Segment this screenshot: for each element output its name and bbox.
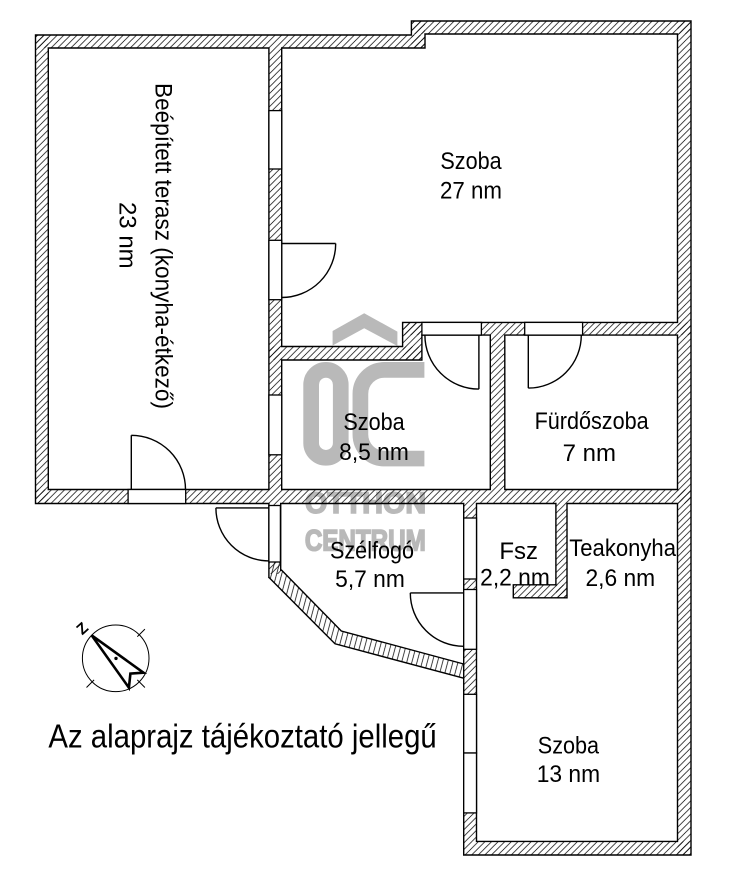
svg-text:23 nm: 23 nm — [113, 202, 140, 269]
svg-text:7 nm: 7 nm — [563, 440, 616, 467]
svg-text:8,5 nm: 8,5 nm — [339, 438, 409, 465]
svg-text:Szélfogó: Szélfogó — [330, 536, 414, 563]
svg-text:2,2 nm: 2,2 nm — [480, 564, 550, 591]
svg-text:Szoba: Szoba — [440, 147, 502, 174]
svg-text:13 nm: 13 nm — [537, 761, 600, 788]
svg-text:Az alaprajz tájékoztató jelleg: Az alaprajz tájékoztató jellegű — [48, 718, 436, 755]
svg-text:27 nm: 27 nm — [440, 177, 502, 204]
svg-text:Fürdőszoba: Fürdőszoba — [535, 407, 649, 434]
svg-text:2,6 nm: 2,6 nm — [585, 564, 655, 591]
svg-text:Szoba: Szoba — [343, 408, 405, 435]
svg-text:5,7 nm: 5,7 nm — [335, 565, 405, 592]
svg-text:Szoba: Szoba — [538, 731, 600, 758]
svg-text:OTTHON: OTTHON — [305, 488, 426, 520]
svg-text:Teakonyha: Teakonyha — [569, 534, 676, 561]
svg-text:Fsz: Fsz — [499, 538, 538, 565]
svg-text:Beépített terasz (konyha-étkez: Beépített terasz (konyha-étkező) — [150, 83, 177, 409]
